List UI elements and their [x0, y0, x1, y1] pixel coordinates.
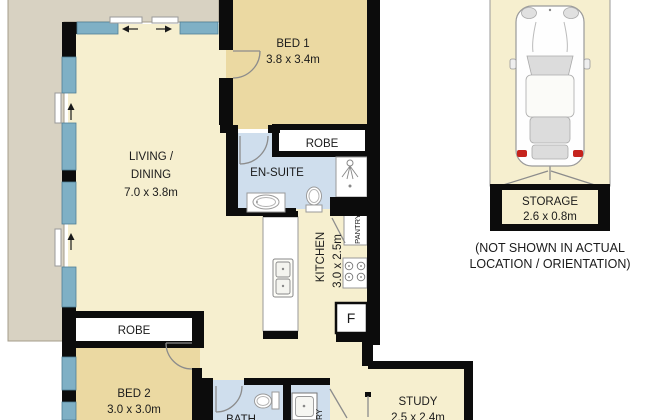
car-mirror	[584, 59, 590, 69]
storage-label: STORAGE	[522, 196, 578, 208]
car-cabin	[526, 75, 574, 117]
car-trunk	[532, 145, 568, 159]
kitchen-dim: 3.0 x 2.5m	[332, 234, 344, 288]
study-label: STUDY	[399, 396, 438, 408]
storage-dim: 2.6 x 0.8m	[523, 211, 577, 223]
bed1-label: BED 1	[276, 38, 309, 50]
bed1-dim: 3.8 x 3.4m	[266, 54, 320, 66]
car-headrest	[522, 8, 537, 19]
car-mirror	[510, 59, 516, 69]
entry-door-leaf	[55, 229, 61, 266]
car-windshield	[527, 56, 573, 77]
window	[77, 22, 118, 34]
window	[62, 357, 76, 390]
window	[180, 22, 218, 34]
car-illustration	[510, 6, 590, 166]
kitchen-sink-icon	[273, 259, 293, 297]
sliding-door-panel	[110, 17, 142, 23]
kitchen-label: KITCHEN	[315, 232, 327, 282]
sliding-door-panel	[152, 17, 178, 23]
bath-label: BATH	[226, 414, 256, 420]
robe1-label: ROBE	[306, 138, 339, 150]
study-dim: 2.5 x 2.4m	[391, 412, 445, 420]
window	[62, 402, 76, 420]
living-dim: 7.0 x 3.8m	[124, 187, 178, 199]
car-taillight	[517, 150, 527, 157]
entry-door-leaf	[55, 93, 61, 123]
laundry-label: LAUNDRY	[315, 408, 324, 420]
window	[62, 57, 76, 93]
window	[62, 123, 76, 170]
vanity-basin-icon	[247, 193, 285, 212]
garage-note-line1: (NOT SHOWN IN ACTUAL	[475, 241, 625, 255]
window	[62, 182, 76, 224]
car-rear-window	[530, 117, 570, 143]
ensuite-label: EN-SUITE	[250, 167, 304, 179]
robe2-label: ROBE	[118, 325, 151, 337]
window	[62, 267, 76, 307]
bed2-dim: 3.0 x 3.0m	[107, 404, 161, 416]
shower-cubicle	[336, 157, 367, 197]
living-label-2: DINING	[131, 169, 171, 181]
floor-plan: LIVING / DINING 7.0 x 3.8m BED 1 3.8 x 3…	[0, 0, 650, 420]
toilet-icon	[306, 187, 322, 212]
laundry-tub-icon	[292, 393, 317, 420]
living-label: LIVING /	[129, 151, 174, 163]
car-headrest	[564, 8, 579, 19]
pantry-label: PANTRY	[353, 214, 362, 244]
car-taillight	[573, 150, 583, 157]
floor-plan-svg: LIVING / DINING 7.0 x 3.8m BED 1 3.8 x 3…	[0, 0, 650, 420]
garage-note-line2: LOCATION / ORIENTATION)	[469, 257, 630, 271]
fridge-label: F	[347, 310, 356, 326]
bed2-label: BED 2	[117, 388, 150, 400]
